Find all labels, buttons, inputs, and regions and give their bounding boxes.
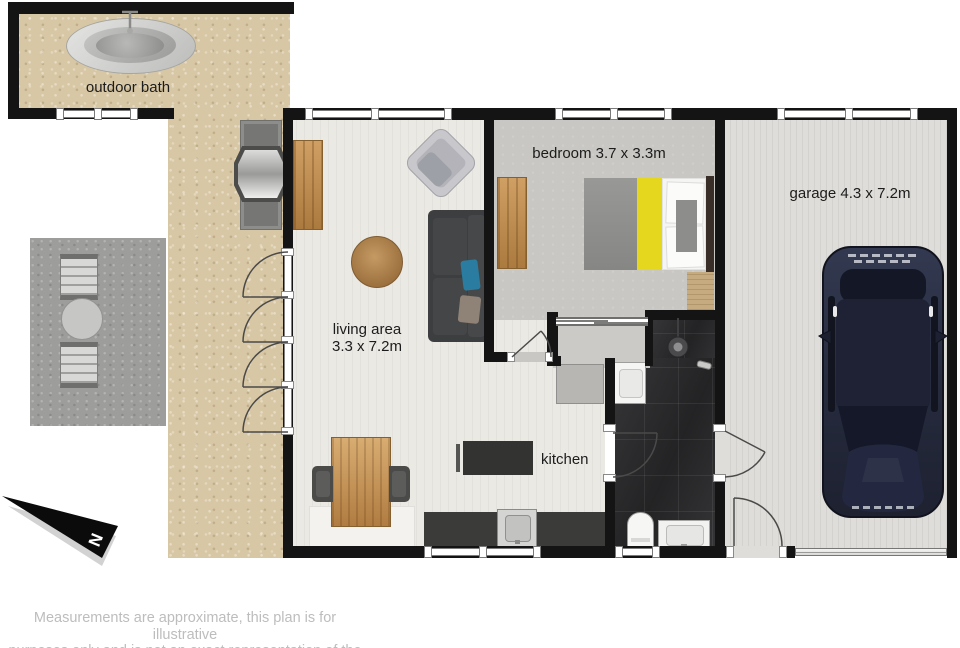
bathroom-door-swing — [613, 433, 657, 477]
tub-faucet-icon — [122, 12, 138, 34]
garage-label: garage 4.3 x 7.2m — [790, 185, 911, 202]
french-door-swings — [243, 252, 288, 432]
garage-entry-door-swing — [734, 498, 782, 546]
floor-plan: N outdoor bath bedroom 3.7 x 3.3m garage… — [0, 0, 960, 648]
north-arrow: N — [2, 496, 118, 566]
disclaimer: Measurements are approximate, this plan … — [0, 610, 370, 648]
kitchen-label: kitchen — [541, 451, 589, 468]
shower-head-icon — [668, 318, 688, 357]
towel-hook-icon — [697, 360, 712, 369]
outdoor-bath-label: outdoor bath — [86, 79, 170, 96]
bedroom-label: bedroom 3.7 x 3.3m — [532, 145, 665, 162]
disclaimer-line2: purposes only and is not an exact repres… — [0, 643, 370, 648]
bedroom-door-swing — [512, 331, 551, 357]
garage-side-door-swing — [725, 431, 765, 477]
disclaimer-line1: Measurements are approximate, this plan … — [0, 610, 370, 643]
symbol-overlay: N — [0, 0, 960, 648]
living-area-label-line2: 3.3 x 7.2m — [332, 338, 402, 355]
living-area-label: living area 3.3 x 7.2m — [332, 321, 402, 355]
living-area-label-line1: living area — [332, 321, 402, 338]
